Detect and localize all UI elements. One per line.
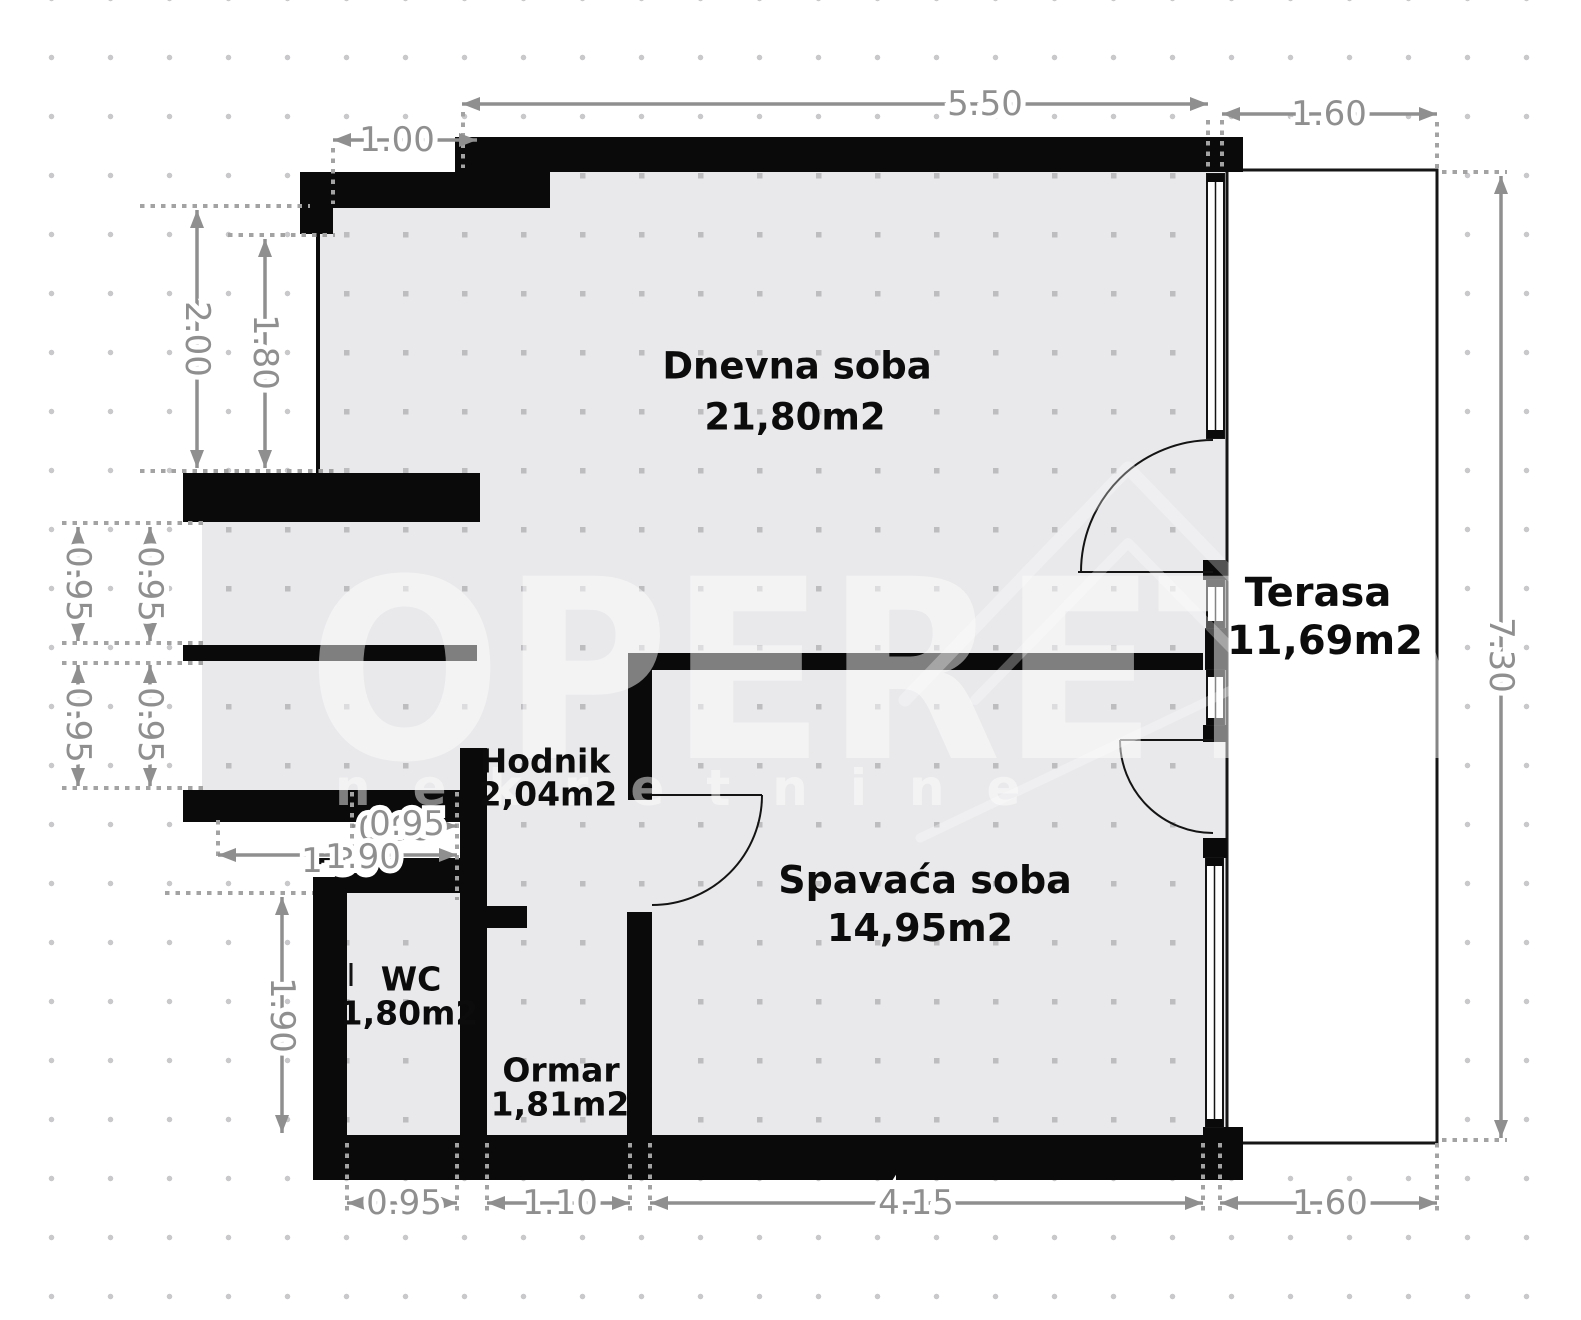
- dim-left-095-inner-lower: 0.95: [130, 687, 170, 763]
- dim-left-095-inner-upper: 0.95: [130, 546, 170, 622]
- label-terrace-name: Terasa: [1245, 570, 1392, 616]
- dim-bottom-110: 1.10: [522, 1183, 598, 1223]
- dim-entry-190: 1.90: [325, 837, 401, 877]
- dim-left-200: 2.00: [177, 301, 217, 377]
- label-living-name: Dnevna soba: [662, 345, 931, 388]
- wall-right-sill: [1203, 838, 1227, 858]
- label-bedroom-area: 14,95m2: [827, 906, 1013, 950]
- dim-left-180: 1.80: [245, 314, 285, 390]
- wall-top-left-stub: [300, 208, 333, 234]
- wall-left-window-line: [316, 232, 320, 475]
- dim-right-730: 7.30: [1481, 617, 1521, 693]
- label-bedroom-name: Spavaća soba: [778, 858, 1072, 902]
- dim-left-095-outer-upper: 0.95: [58, 546, 98, 622]
- wall-closet-east: [627, 912, 652, 1135]
- wall-left-upper: [183, 473, 480, 522]
- wall-top-left-step: [300, 172, 550, 208]
- dim-bottom-160: 1.60: [1292, 1183, 1368, 1223]
- floorplan-svg: OPERETA nekretnine 5.50 1.60 1.00 2.00 1…: [0, 0, 1581, 1320]
- label-wc-area: 1,80m2: [340, 994, 479, 1033]
- window-living-large: [1207, 174, 1224, 438]
- floorplan-canvas: OPERETA nekretnine 5.50 1.60 1.00 2.00 1…: [0, 0, 1581, 1320]
- label-hall-area: 2,04m2: [479, 775, 618, 814]
- dim-bottom-095: 0.95: [366, 1183, 442, 1223]
- wall-bottom: [313, 1135, 1243, 1180]
- label-closet-area: 1,81m2: [491, 1085, 630, 1124]
- dim-left-190: 1.90: [262, 977, 302, 1053]
- wall-hall-step: [487, 906, 527, 928]
- dim-top-160: 1.60: [1291, 94, 1367, 134]
- dim-top-100: 1.00: [359, 120, 435, 160]
- dim-top-550: 5.50: [947, 84, 1023, 124]
- dim-bottom-415: 4.15: [878, 1183, 954, 1223]
- window-bedroom-large: [1206, 858, 1223, 1127]
- label-living-area: 21,80m2: [704, 396, 885, 439]
- dim-left-095-outer-lower: 0.95: [58, 687, 98, 763]
- label-terrace-area: 11,69m2: [1227, 618, 1423, 664]
- wall-right-corner: [1203, 1127, 1243, 1180]
- wall-top: [455, 137, 1243, 172]
